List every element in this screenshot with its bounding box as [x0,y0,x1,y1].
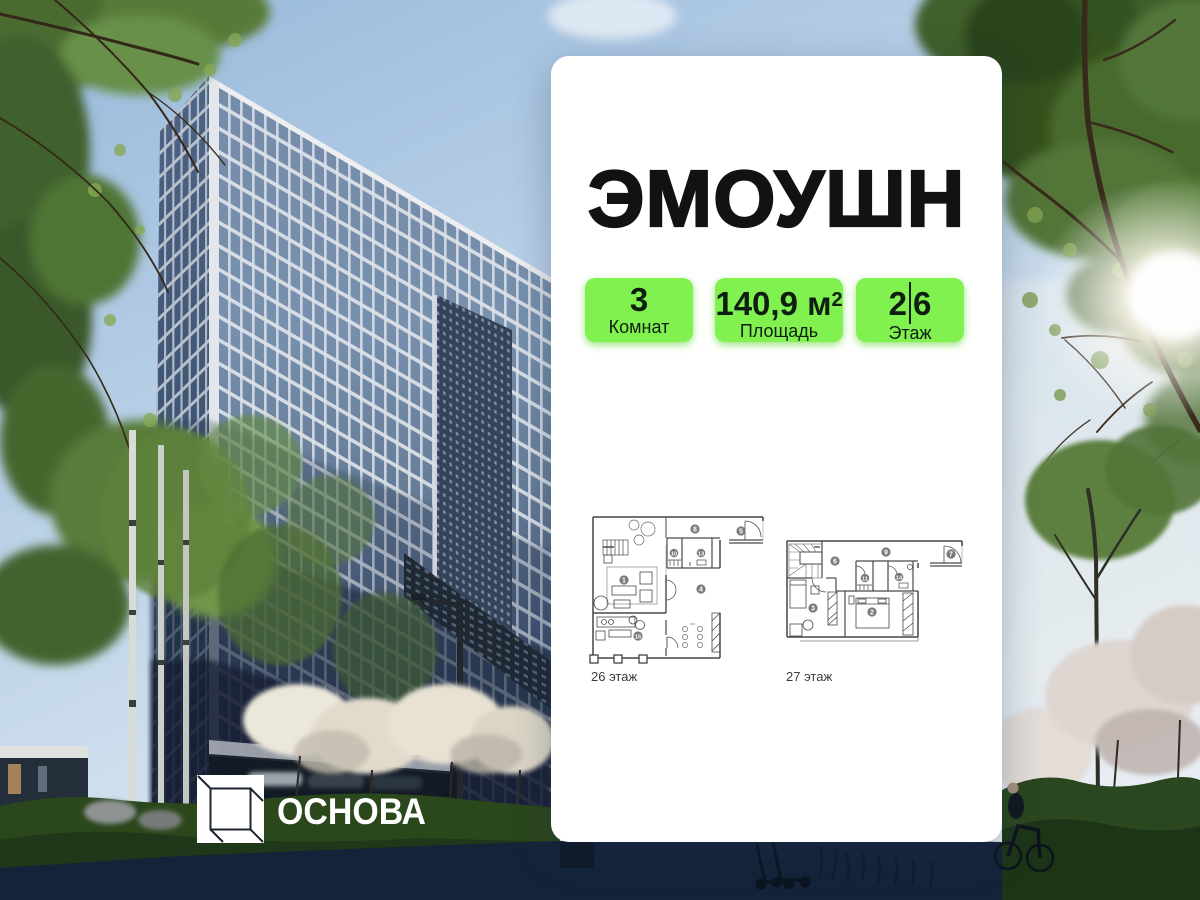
svg-text:9: 9 [884,550,888,557]
svg-text:7: 7 [949,552,953,559]
svg-text:4: 4 [699,587,703,594]
svg-text:8: 8 [693,527,697,534]
svg-text:15: 15 [635,635,641,641]
svg-text:5: 5 [739,529,743,536]
svg-text:10: 10 [671,552,677,558]
svg-text:1: 1 [622,578,626,585]
svg-text:14: 14 [896,576,903,582]
svg-text:6: 6 [833,559,837,566]
svg-text:2: 2 [870,610,874,617]
svg-text:ОСНОВА: ОСНОВА [277,791,426,832]
svg-text:13: 13 [698,552,704,558]
svg-text:11: 11 [862,577,868,583]
svg-text:3: 3 [811,606,815,613]
